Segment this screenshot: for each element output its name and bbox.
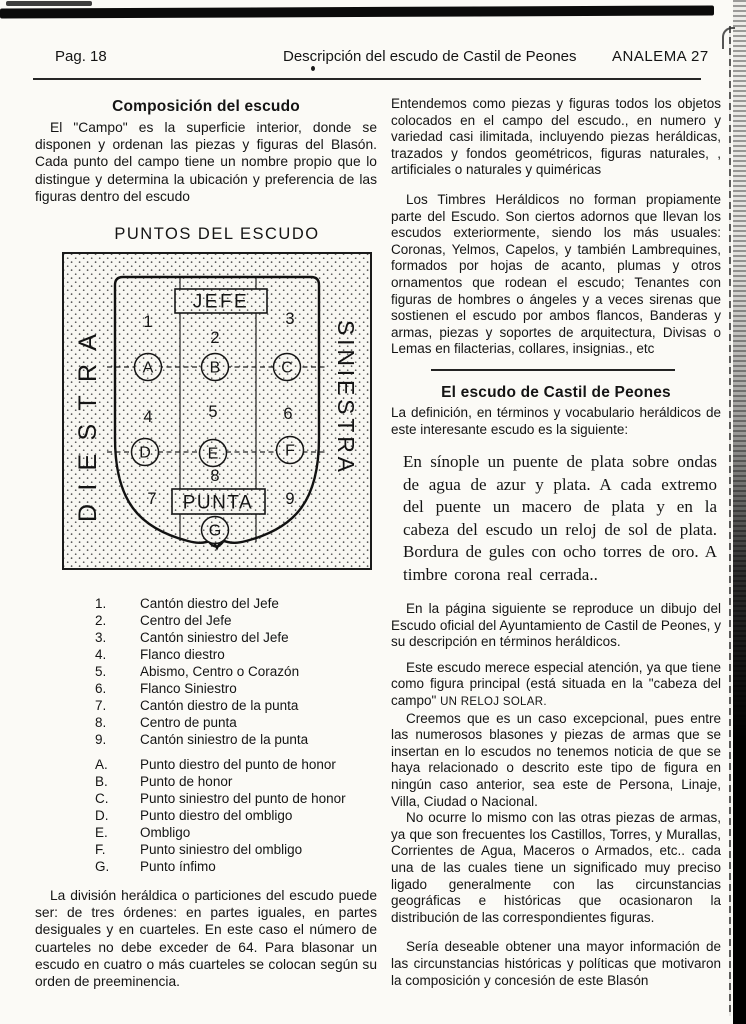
- list-label: Punto diestro del ombligo: [140, 807, 377, 824]
- header-rule: [33, 78, 701, 80]
- paragraph-division: La división heráldica o particiones del …: [35, 887, 377, 990]
- list-marker: 8.: [95, 714, 140, 731]
- point-letter-F: F: [285, 443, 295, 460]
- list-label: Cantón siniestro del Jefe: [140, 629, 377, 646]
- list-marker: 7.: [95, 697, 140, 714]
- list-item: C.Punto siniestro del punto de honor: [35, 790, 377, 807]
- list-item: G.Punto ínfimo: [35, 858, 377, 875]
- blazon-quote: En sínople un puente de plata sobre onda…: [403, 451, 717, 586]
- shield-diagram-svg: JEFE PUNTA 1 2 3 4 5 6 7 8 9: [62, 252, 372, 570]
- lettered-point-list: A.Punto diestro del punto de honor B.Pun…: [35, 756, 377, 875]
- list-label: Flanco Siniestro: [140, 680, 377, 697]
- point-number-3: 3: [285, 310, 294, 328]
- point-number-7: 7: [147, 490, 156, 508]
- list-item: 7.Cantón diestro de la punta: [35, 697, 377, 714]
- paragraph-caso-excepcional: Creemos que es un caso excepcional, pues…: [391, 711, 721, 811]
- list-marker: D.: [95, 807, 140, 824]
- list-marker: 6.: [95, 680, 140, 697]
- list-label: Punto siniestro del ombligo: [140, 841, 377, 858]
- list-label: Cantón siniestro de la punta: [140, 731, 377, 748]
- list-marker: 3.: [95, 629, 140, 646]
- issue-label: ANALEMA 27: [612, 48, 709, 65]
- paragraph-definicion: La definición, en términos y vocabulario…: [391, 405, 721, 438]
- diagram-title: PUNTOS DEL ESCUDO: [62, 225, 372, 244]
- paragraph-reloj-solar: Este escudo merece especial atención, ya…: [391, 660, 721, 711]
- list-marker: 2.: [95, 612, 140, 629]
- list-item: D.Punto diestro del ombligo: [35, 807, 377, 824]
- point-letter-A: A: [143, 360, 154, 377]
- list-label: Cantón diestro de la punta: [140, 697, 377, 714]
- paragraph-pagina-siguiente: En la página siguiente se reproduce un d…: [391, 601, 721, 651]
- punta-label: PUNTA: [183, 493, 253, 514]
- scan-binding-shadow: [733, 0, 746, 1024]
- point-number-1: 1: [143, 313, 152, 331]
- list-marker: 5.: [95, 663, 140, 680]
- page-number: Pag. 18: [55, 48, 107, 65]
- list-label: Ombligo: [140, 824, 377, 841]
- list-marker: E.: [95, 824, 140, 841]
- list-item: 1.Cantón diestro del Jefe: [35, 595, 377, 612]
- section-heading-escudo: El escudo de Castil de Peones: [391, 384, 721, 402]
- point-letter-G: G: [209, 523, 221, 540]
- numbered-point-list: 1.Cantón diestro del Jefe 2.Centro del J…: [35, 595, 377, 748]
- paragraph-piezas: Entendemos como piezas y figuras todos l…: [391, 96, 721, 179]
- two-column-body: Composición del escudo El "Campo" es la …: [35, 96, 721, 990]
- list-item: 6.Flanco Siniestro: [35, 680, 377, 697]
- list-item: 2.Centro del Jefe: [35, 612, 377, 629]
- reloj-solar-smallcaps: UN RELOJ SOLAR.: [440, 696, 547, 708]
- list-marker: C.: [95, 790, 140, 807]
- list-marker: 9.: [95, 731, 140, 748]
- list-label: Centro de punta: [140, 714, 377, 731]
- page-header: Pag. 18 Descripción del escudo de Castil…: [0, 0, 746, 96]
- list-item: 8.Centro de punta: [35, 714, 377, 731]
- scan-dot: [311, 66, 315, 71]
- list-label: Punto siniestro del punto de honor: [140, 790, 377, 807]
- shield-points-diagram: JEFE PUNTA 1 2 3 4 5 6 7 8 9: [62, 252, 372, 575]
- scan-page-edge-line: [729, 26, 731, 1016]
- list-label: Punto de honor: [140, 773, 377, 790]
- scanned-magazine-page: { "header": { "page_label": "Pag. 18", "…: [0, 0, 746, 1024]
- running-title: Descripción del escudo de Castil de Peon…: [283, 48, 577, 65]
- list-label: Centro del Jefe: [140, 612, 377, 629]
- list-item: 3.Cantón siniestro del Jefe: [35, 629, 377, 646]
- point-letter-B: B: [210, 360, 221, 377]
- list-item: F.Punto siniestro del ombligo: [35, 841, 377, 858]
- list-item: 5.Abismo, Centro o Corazón: [35, 663, 377, 680]
- point-letter-E: E: [208, 446, 219, 463]
- jefe-label: JEFE: [193, 292, 249, 313]
- point-number-2: 2: [210, 329, 219, 347]
- right-column: Entendemos como piezas y figuras todos l…: [391, 96, 721, 990]
- paragraph-timbres: Los Timbres Heráldicos no forman propiam…: [391, 192, 721, 358]
- list-item: 4.Flanco diestro: [35, 646, 377, 663]
- list-marker: 1.: [95, 595, 140, 612]
- list-marker: F.: [95, 841, 140, 858]
- list-item: 9.Cantón siniestro de la punta: [35, 731, 377, 748]
- list-item: A.Punto diestro del punto de honor: [35, 756, 377, 773]
- point-number-9: 9: [285, 490, 294, 508]
- list-marker: B.: [95, 773, 140, 790]
- paragraph-otras-piezas: No ocurre lo mismo con las otras piezas …: [391, 810, 721, 926]
- list-label: Flanco diestro: [140, 646, 377, 663]
- point-number-8: 8: [210, 467, 219, 485]
- list-item: E.Ombligo: [35, 824, 377, 841]
- section-divider: [431, 369, 675, 371]
- list-label: Punto ínfimo: [140, 858, 377, 875]
- point-letter-D: D: [139, 445, 151, 462]
- left-column: Composición del escudo El "Campo" es la …: [35, 96, 377, 990]
- list-label: Cantón diestro del Jefe: [140, 595, 377, 612]
- point-letter-C: C: [281, 360, 293, 377]
- paragraph-seria-deseable: Sería deseable obtener una mayor informa…: [391, 939, 721, 989]
- section-heading-composicion: Composición del escudo: [35, 98, 377, 116]
- list-marker: A.: [95, 756, 140, 773]
- point-number-5: 5: [208, 403, 217, 421]
- paragraph-intro: El "Campo" es la superficie interior, do…: [35, 119, 377, 205]
- list-label: Punto diestro del punto de honor: [140, 756, 377, 773]
- list-item: B.Punto de honor: [35, 773, 377, 790]
- point-number-6: 6: [283, 405, 292, 423]
- list-marker: G.: [95, 858, 140, 875]
- list-marker: 4.: [95, 646, 140, 663]
- point-number-4: 4: [143, 408, 152, 426]
- list-label: Abismo, Centro o Corazón: [140, 663, 377, 680]
